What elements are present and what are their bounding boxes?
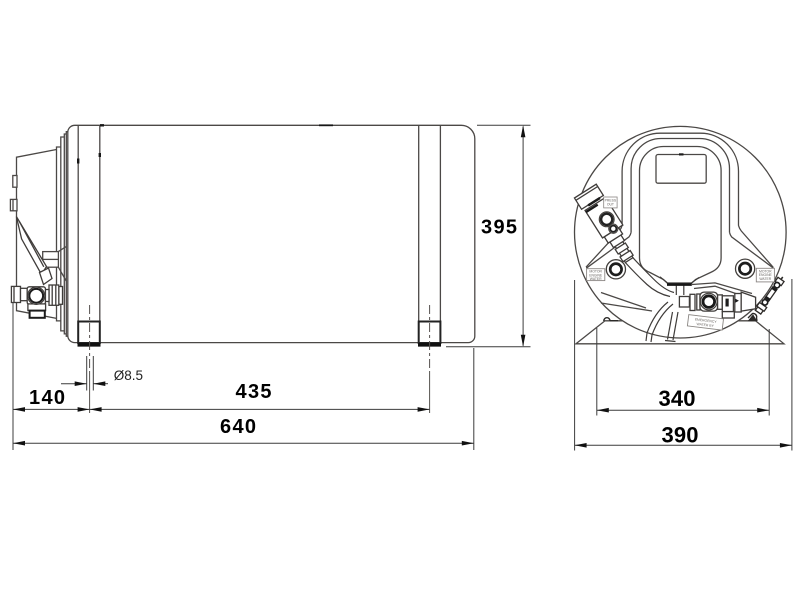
svg-text:390: 390 [662,422,699,447]
svg-text:640: 640 [220,416,256,438]
svg-text:Ø8.5: Ø8.5 [114,368,143,383]
svg-text:WATER: WATER [590,277,602,281]
svg-text:WATER: WATER [759,277,771,281]
svg-text:435: 435 [236,381,272,403]
svg-text:340: 340 [659,386,696,411]
svg-text:140: 140 [29,387,65,409]
svg-text:OUT: OUT [607,203,614,207]
svg-text:395: 395 [481,216,517,238]
